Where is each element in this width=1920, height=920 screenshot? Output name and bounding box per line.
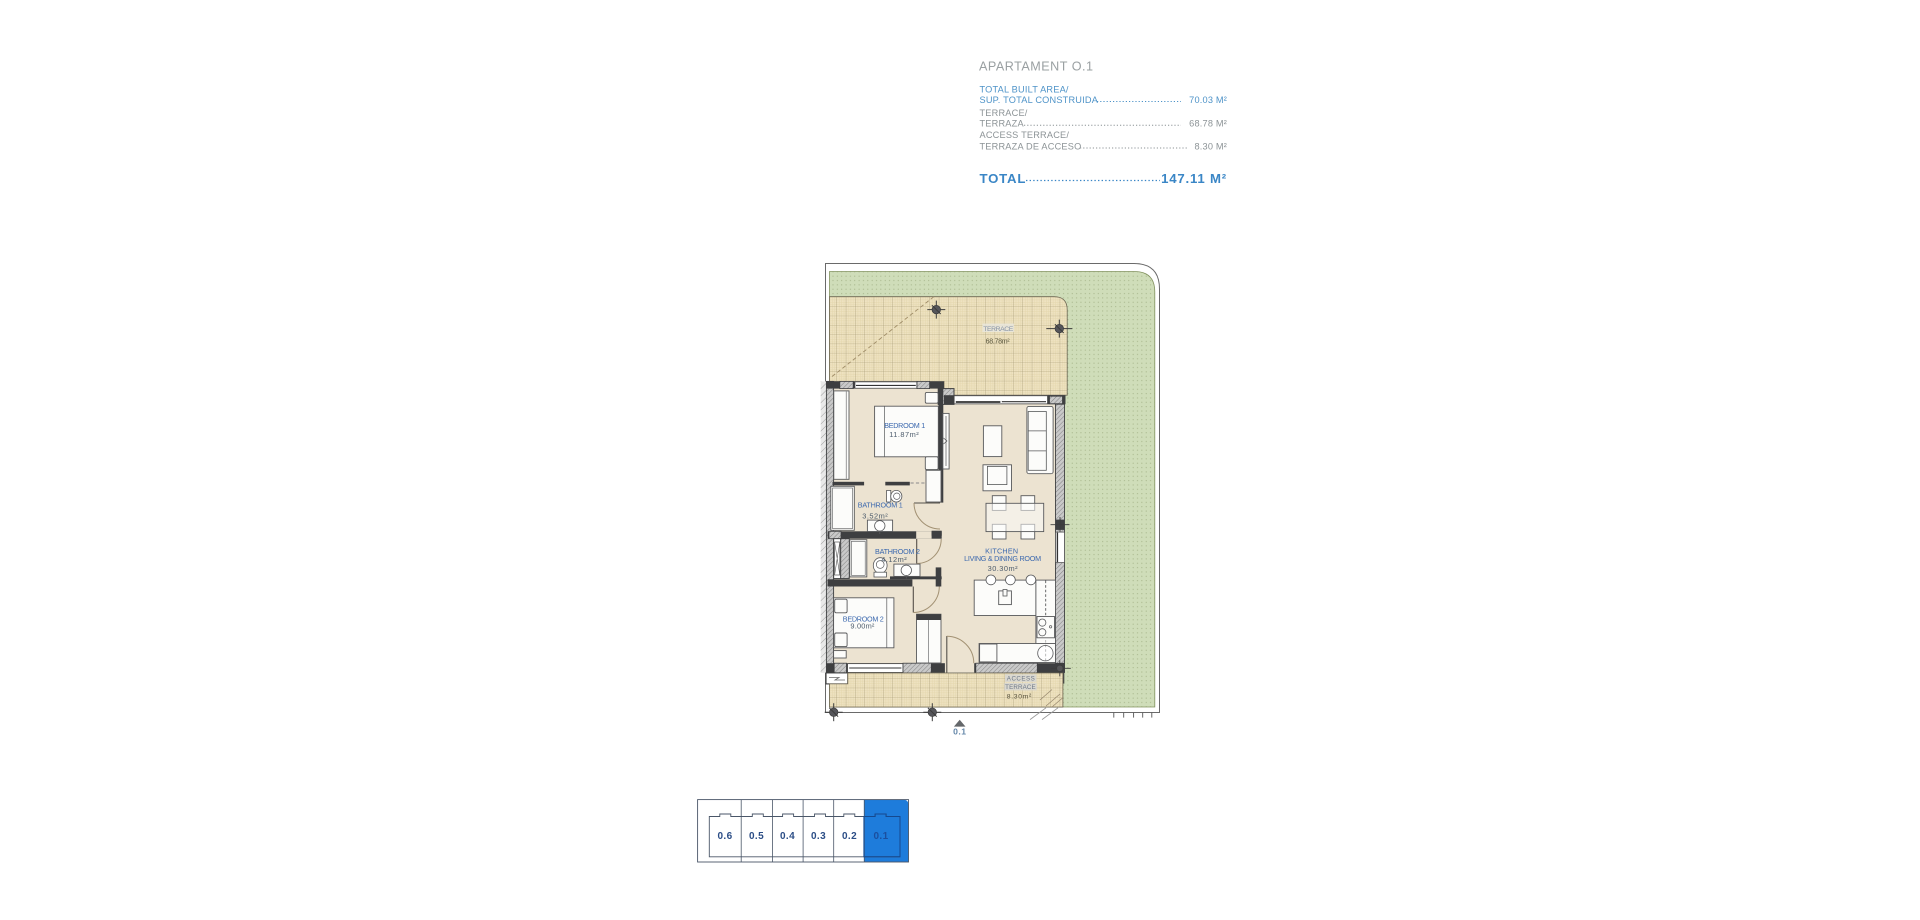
- svg-text:APARTAMENT O.1: APARTAMENT O.1: [979, 60, 1094, 74]
- svg-text:ACCESS TERRACE/: ACCESS TERRACE/: [980, 130, 1070, 140]
- svg-text:9.00m²: 9.00m²: [850, 622, 875, 631]
- svg-text:TERRACE: TERRACE: [1005, 684, 1036, 691]
- svg-text:0.4: 0.4: [780, 831, 795, 842]
- svg-text:4.12m²: 4.12m²: [881, 555, 907, 564]
- svg-text:TOTAL BUILT AREA/: TOTAL BUILT AREA/: [980, 85, 1069, 95]
- svg-text:68.78m²: 68.78m²: [986, 339, 1011, 346]
- svg-text:ACCESS: ACCESS: [1007, 676, 1035, 683]
- svg-text:BATHROOM 1: BATHROOM 1: [858, 501, 903, 510]
- svg-text:11.87m²: 11.87m²: [889, 430, 919, 439]
- svg-text:TOTAL: TOTAL: [980, 171, 1027, 186]
- svg-text:3.52m²: 3.52m²: [862, 511, 888, 520]
- svg-text:LIVING & DINING ROOM: LIVING & DINING ROOM: [964, 554, 1041, 563]
- svg-text:TERRACE/: TERRACE/: [980, 108, 1028, 118]
- svg-text:TERRAZA: TERRAZA: [980, 119, 1025, 129]
- svg-text:8.30m²: 8.30m²: [1007, 693, 1032, 700]
- svg-text:0.6: 0.6: [717, 831, 732, 842]
- svg-text:8.30 M²: 8.30 M²: [1194, 142, 1227, 152]
- svg-text:30.30m²: 30.30m²: [988, 564, 1019, 573]
- svg-text:147.11 M²: 147.11 M²: [1161, 171, 1227, 186]
- svg-text:68.78 M²: 68.78 M²: [1189, 119, 1227, 129]
- svg-text:0.1: 0.1: [953, 727, 966, 737]
- svg-text:SUP. TOTAL CONSTRUIDA: SUP. TOTAL CONSTRUIDA: [980, 95, 1099, 105]
- svg-text:0.5: 0.5: [749, 831, 764, 842]
- svg-text:0.2: 0.2: [842, 831, 857, 842]
- svg-text:70.03 M²: 70.03 M²: [1189, 95, 1227, 105]
- svg-text:TERRAZA DE ACCESO: TERRAZA DE ACCESO: [980, 142, 1082, 152]
- svg-text:0.3: 0.3: [811, 831, 826, 842]
- svg-text:0.1: 0.1: [873, 831, 888, 842]
- svg-text:TERRACE: TERRACE: [983, 326, 1013, 333]
